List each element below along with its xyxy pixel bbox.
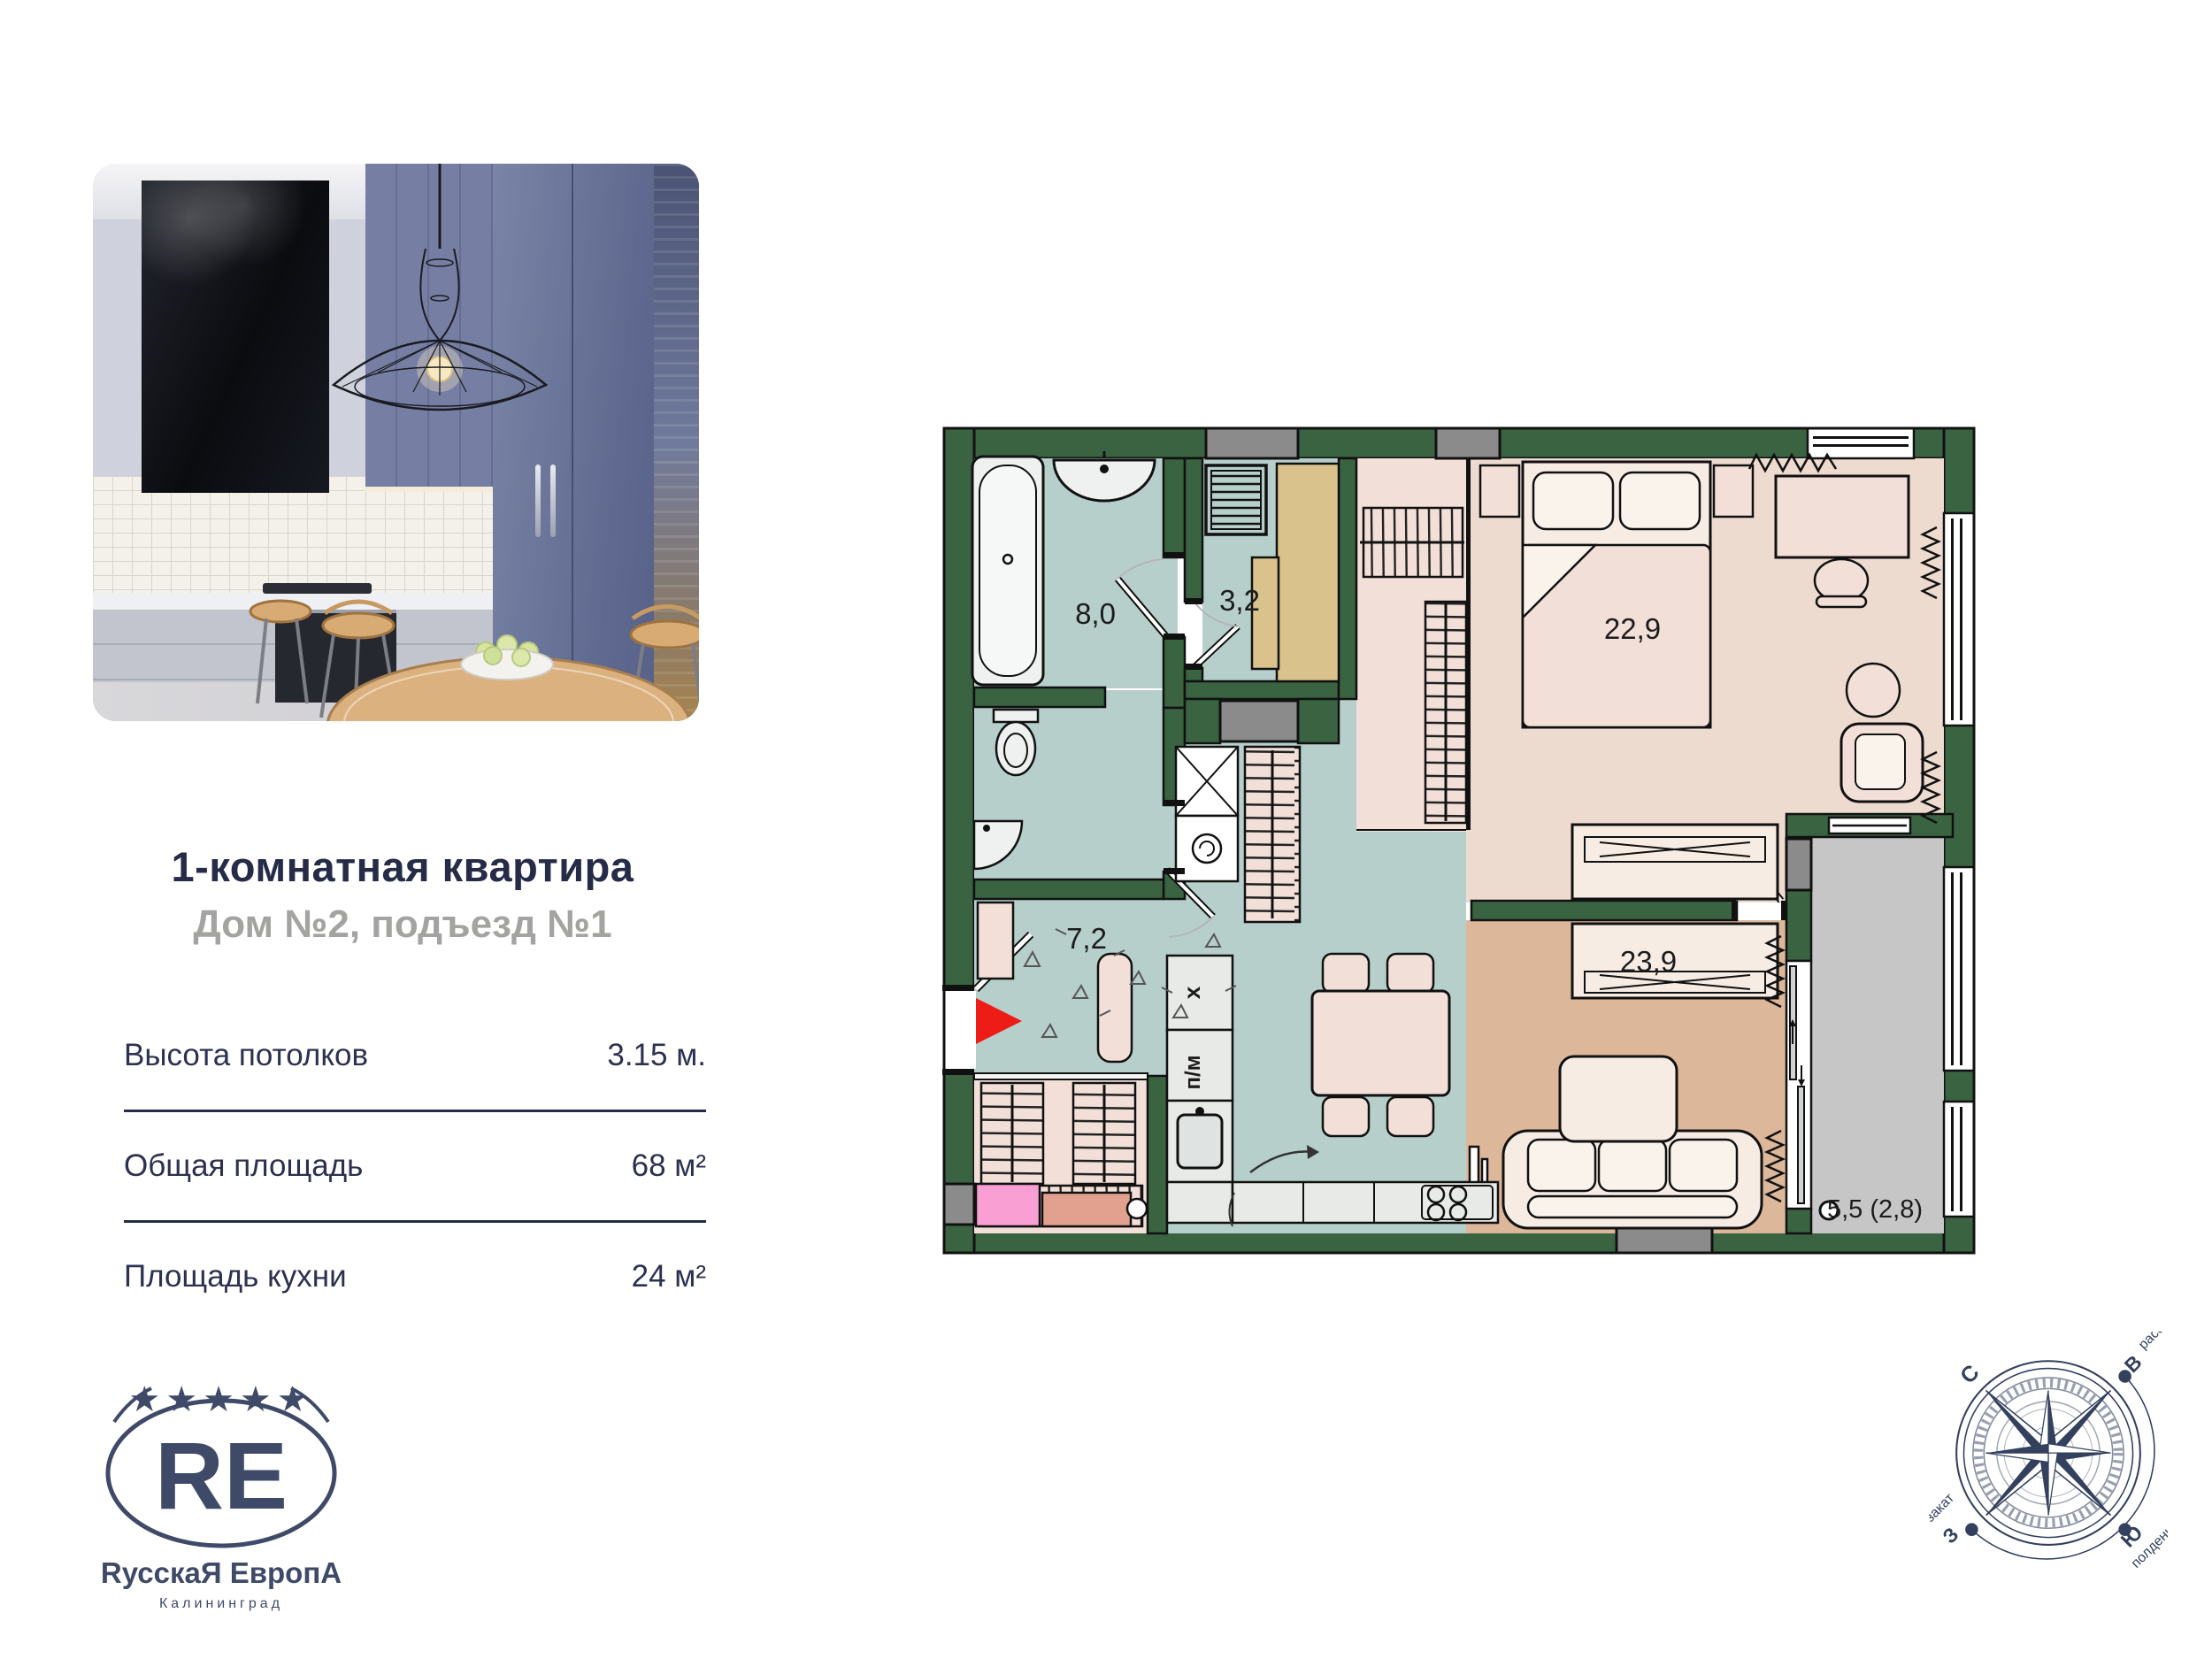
photo-dining-set — [250, 601, 699, 721]
entry-console — [978, 902, 1013, 979]
logo-company: RусскаЯ ЕвропА — [101, 1556, 342, 1589]
bedroom-top-window — [1808, 428, 1914, 458]
closet-pink-box — [976, 1184, 1040, 1226]
balcony-slider-door — [1786, 961, 1811, 1209]
page: 1-комнатная квартира Дом №2, подъезд №1 … — [0, 0, 2212, 1659]
floor-plan: х п/м — [941, 425, 1978, 1256]
logo-monogram: RE — [155, 1422, 288, 1529]
compass-dawn-label: рассвет — [2136, 1332, 2168, 1353]
logo-stars: ★★★★★ — [128, 1380, 313, 1419]
compass-rose: С В рассвет Ю полдень З закат — [1929, 1332, 2168, 1571]
brand-logo: ★★★★★ RE RусскаЯ ЕвропА Калининград — [84, 1340, 358, 1615]
room-label-balcony: 5,5 (2,8) — [1827, 1195, 1923, 1224]
spec-value: 3.15 м. — [607, 1038, 706, 1073]
spec-row-total-area: Общая площадь 68 м² — [124, 1110, 706, 1220]
photo-foreground — [93, 164, 699, 721]
listing-subtitle: Дом №2, подъезд №1 — [102, 902, 703, 947]
room-label-storage: 3,2 — [1219, 584, 1260, 617]
kitchen-sink-icon — [1178, 1115, 1222, 1168]
room-label-bedroom: 22,9 — [1604, 612, 1661, 645]
logo-city: Калининград — [159, 1596, 283, 1611]
spec-label: Общая площадь — [124, 1148, 363, 1184]
dining-table-icon — [1312, 991, 1449, 1095]
room-label-hallway: 7,2 — [1066, 922, 1107, 955]
spec-value: 68 м² — [632, 1148, 706, 1184]
spec-label: Площадь кухни — [124, 1259, 347, 1294]
fridge-label: х — [1179, 986, 1205, 999]
room-label-kitchen-living: 23,9 — [1620, 945, 1677, 978]
dishwasher-label: п/м — [1181, 1056, 1205, 1090]
toilet-icon — [994, 710, 1038, 722]
vent-grate-icon — [1211, 471, 1261, 529]
bedroom-right-window — [1944, 513, 1974, 726]
spec-row-ceiling-height: Высота потолков 3.15 м. — [124, 1002, 706, 1110]
listing-title: 1-комнатная квартира — [102, 842, 703, 891]
spec-row-kitchen-area: Площадь кухни 24 м² — [124, 1220, 706, 1331]
compass-north-label: С — [1955, 1360, 1985, 1389]
coffee-table-icon — [1560, 1056, 1677, 1141]
room-label-bathroom: 8,0 — [1075, 597, 1116, 630]
closet-cabinet — [1277, 464, 1339, 681]
specs-table: Высота потолков 3.15 м. Общая площадь 68… — [124, 1002, 706, 1331]
kitchen-photo — [93, 164, 699, 721]
compass-sunset-label: закат — [1929, 1491, 1957, 1525]
pendant-lamp-icon — [334, 164, 546, 410]
spec-value: 24 м² — [632, 1259, 706, 1294]
desk-icon — [1776, 476, 1909, 557]
washing-machine-icon — [1176, 816, 1238, 881]
compass-star — [1985, 1390, 2110, 1515]
spec-label: Высота потолков — [124, 1038, 368, 1073]
compass-west-label: З — [1938, 1523, 1963, 1548]
